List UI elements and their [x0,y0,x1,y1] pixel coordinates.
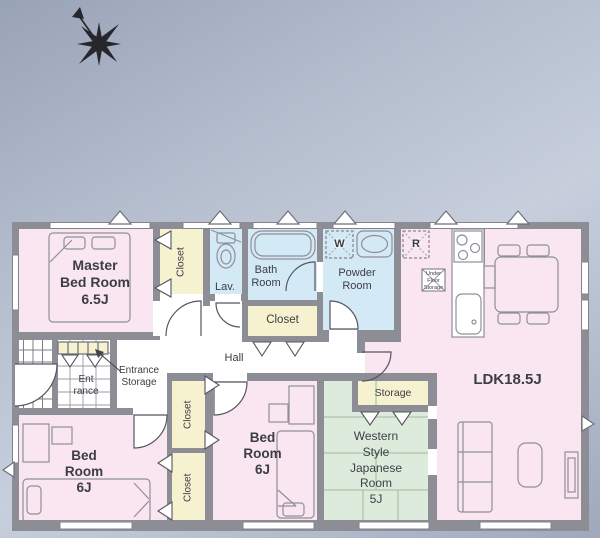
label-master-bedroom: Master Bed Room 6.5J [38,257,152,307]
label-hall: Hall [214,352,254,365]
label-under-floor-storage: Under Floor Storage [420,271,447,292]
label-entrance: Ent rance [63,374,109,398]
label-closet-column-lower: Closet [177,459,200,516]
label-powder-room: Powder Room [324,267,390,293]
compass-icon [72,7,121,66]
label-bedroom-middle: Bed Room 6J [215,430,310,479]
label-bedroom-left: Bed Room 6J [34,448,134,497]
label-refrigerator: R [403,238,429,251]
floor-plan-page: Master Bed Room 6.5J Closet Lav. Bath Ro… [0,0,600,538]
label-closet-column-upper: Closet [177,386,200,443]
label-storage: Storage [358,387,428,400]
label-closet-top: Closet [169,234,193,290]
label-washing-machine: W [327,238,352,251]
label-closet-middle: Closet [248,314,317,328]
label-ldk: LDK18.5J [450,371,565,389]
label-entrance-storage: Entrance Storage [107,365,171,389]
room-ldk-strip [365,342,581,373]
label-japanese-room: Western Style Japanese Room 5J [326,429,426,508]
north-arrow-icon [72,7,99,44]
label-bathroom: Bath Room [238,264,294,290]
